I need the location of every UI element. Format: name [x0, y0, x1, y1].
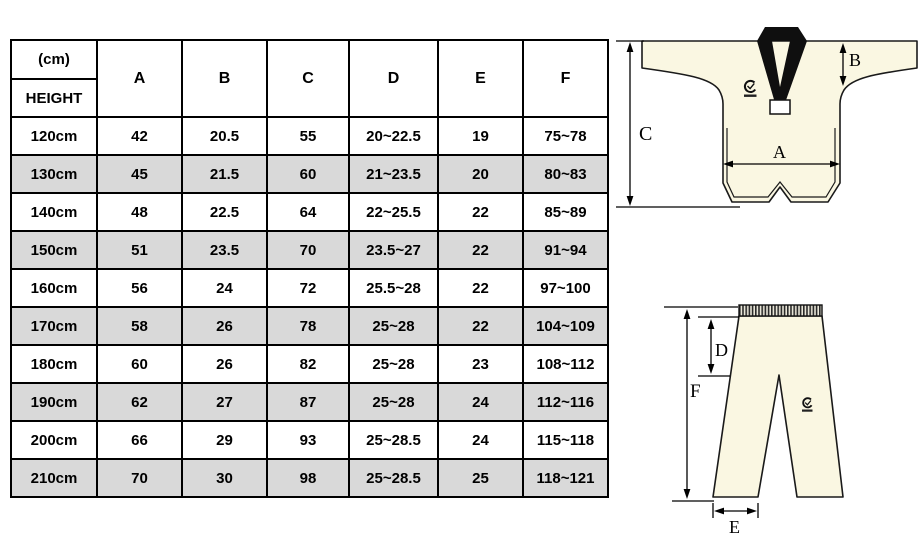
size-value-cell: 75~78 — [523, 117, 608, 155]
size-value-cell: 26 — [182, 307, 267, 345]
size-value-cell: 104~109 — [523, 307, 608, 345]
column-header-c: C — [267, 40, 349, 117]
size-value-cell: 91~94 — [523, 231, 608, 269]
size-value-cell: 23.5 — [182, 231, 267, 269]
size-value-cell: 25.5~28 — [349, 269, 438, 307]
size-value-cell: 85~89 — [523, 193, 608, 231]
dimension-label-a: A — [773, 142, 786, 162]
pants-body — [713, 316, 843, 497]
size-value-cell: 24 — [438, 383, 523, 421]
unit-label: (cm) — [12, 41, 96, 80]
size-value-cell: 112~116 — [523, 383, 608, 421]
size-value-cell: 29 — [182, 421, 267, 459]
jacket-body — [642, 41, 917, 202]
table-row: 200cm66299325~28.524115~118 — [11, 421, 608, 459]
table-row: 170cm58267825~2822104~109 — [11, 307, 608, 345]
size-value-cell: 70 — [267, 231, 349, 269]
size-value-cell: 56 — [97, 269, 182, 307]
height-header-label: HEIGHT — [12, 80, 96, 116]
size-value-cell: 25 — [438, 459, 523, 497]
size-value-cell: 87 — [267, 383, 349, 421]
size-value-cell: 108~112 — [523, 345, 608, 383]
row-height-label: 130cm — [11, 155, 97, 193]
size-value-cell: 98 — [267, 459, 349, 497]
size-value-cell: 27 — [182, 383, 267, 421]
size-value-cell: 26 — [182, 345, 267, 383]
size-value-cell: 42 — [97, 117, 182, 155]
size-value-cell: 30 — [182, 459, 267, 497]
size-table-body: 120cm4220.55520~22.51975~78130cm4521.560… — [11, 117, 608, 497]
size-value-cell: 25~28.5 — [349, 459, 438, 497]
column-header-d: D — [349, 40, 438, 117]
table-row: 210cm70309825~28.525118~121 — [11, 459, 608, 497]
size-value-cell: 64 — [267, 193, 349, 231]
row-height-label: 150cm — [11, 231, 97, 269]
size-value-cell: 62 — [97, 383, 182, 421]
size-value-cell: 24 — [182, 269, 267, 307]
size-value-cell: 66 — [97, 421, 182, 459]
size-value-cell: 72 — [267, 269, 349, 307]
size-value-cell: 21~23.5 — [349, 155, 438, 193]
measurement-diagrams: C B A — [612, 0, 921, 539]
pants-waistband — [739, 305, 822, 316]
dimension-label-f: F — [690, 381, 701, 402]
dimension-arrow-e — [713, 503, 758, 518]
size-value-cell: 48 — [97, 193, 182, 231]
column-header-b: B — [182, 40, 267, 117]
jacket-diagram: C B A — [616, 27, 917, 207]
size-value-cell: 20~22.5 — [349, 117, 438, 155]
corner-header-cell: (cm) HEIGHT — [11, 40, 97, 117]
size-value-cell: 93 — [267, 421, 349, 459]
size-value-cell: 22 — [438, 307, 523, 345]
header-row: (cm) HEIGHT A B C D E F — [11, 40, 608, 117]
table-row: 190cm62278725~2824112~116 — [11, 383, 608, 421]
pants-diagram: F D E — [664, 305, 843, 537]
size-value-cell: 78 — [267, 307, 349, 345]
size-value-cell: 70 — [97, 459, 182, 497]
size-table: (cm) HEIGHT A B C D E F 120cm4220.55520~… — [10, 39, 609, 498]
size-value-cell: 115~118 — [523, 421, 608, 459]
size-chart-page: (cm) HEIGHT A B C D E F 120cm4220.55520~… — [0, 0, 921, 539]
size-value-cell: 24 — [438, 421, 523, 459]
size-value-cell: 55 — [267, 117, 349, 155]
size-value-cell: 21.5 — [182, 155, 267, 193]
row-height-label: 140cm — [11, 193, 97, 231]
table-row: 150cm5123.57023.5~272291~94 — [11, 231, 608, 269]
size-value-cell: 58 — [97, 307, 182, 345]
collar-tie-square — [770, 100, 790, 114]
dimension-label-b: B — [849, 50, 861, 70]
size-value-cell: 20.5 — [182, 117, 267, 155]
size-value-cell: 97~100 — [523, 269, 608, 307]
size-value-cell: 25~28 — [349, 383, 438, 421]
size-value-cell: 51 — [97, 231, 182, 269]
size-value-cell: 118~121 — [523, 459, 608, 497]
dimension-label-c: C — [639, 123, 652, 145]
size-value-cell: 60 — [97, 345, 182, 383]
row-height-label: 170cm — [11, 307, 97, 345]
size-value-cell: 23 — [438, 345, 523, 383]
size-table-header: (cm) HEIGHT A B C D E F — [11, 40, 608, 117]
table-row: 130cm4521.56021~23.52080~83 — [11, 155, 608, 193]
size-value-cell: 20 — [438, 155, 523, 193]
size-value-cell: 45 — [97, 155, 182, 193]
row-height-label: 160cm — [11, 269, 97, 307]
row-height-label: 200cm — [11, 421, 97, 459]
row-height-label: 180cm — [11, 345, 97, 383]
row-height-label: 120cm — [11, 117, 97, 155]
column-header-a: A — [97, 40, 182, 117]
dimension-label-d: D — [715, 340, 728, 360]
size-value-cell: 80~83 — [523, 155, 608, 193]
size-value-cell: 19 — [438, 117, 523, 155]
table-row: 160cm56247225.5~282297~100 — [11, 269, 608, 307]
size-value-cell: 22 — [438, 231, 523, 269]
size-value-cell: 22 — [438, 269, 523, 307]
table-row: 120cm4220.55520~22.51975~78 — [11, 117, 608, 155]
table-row: 180cm60268225~2823108~112 — [11, 345, 608, 383]
column-header-f: F — [523, 40, 608, 117]
column-header-e: E — [438, 40, 523, 117]
size-value-cell: 22~25.5 — [349, 193, 438, 231]
row-height-label: 190cm — [11, 383, 97, 421]
dimension-label-e: E — [729, 517, 740, 537]
size-value-cell: 22 — [438, 193, 523, 231]
size-value-cell: 25~28 — [349, 307, 438, 345]
size-value-cell: 60 — [267, 155, 349, 193]
size-value-cell: 82 — [267, 345, 349, 383]
row-height-label: 210cm — [11, 459, 97, 497]
table-row: 140cm4822.56422~25.52285~89 — [11, 193, 608, 231]
size-value-cell: 23.5~27 — [349, 231, 438, 269]
size-value-cell: 25~28 — [349, 345, 438, 383]
size-value-cell: 25~28.5 — [349, 421, 438, 459]
size-value-cell: 22.5 — [182, 193, 267, 231]
